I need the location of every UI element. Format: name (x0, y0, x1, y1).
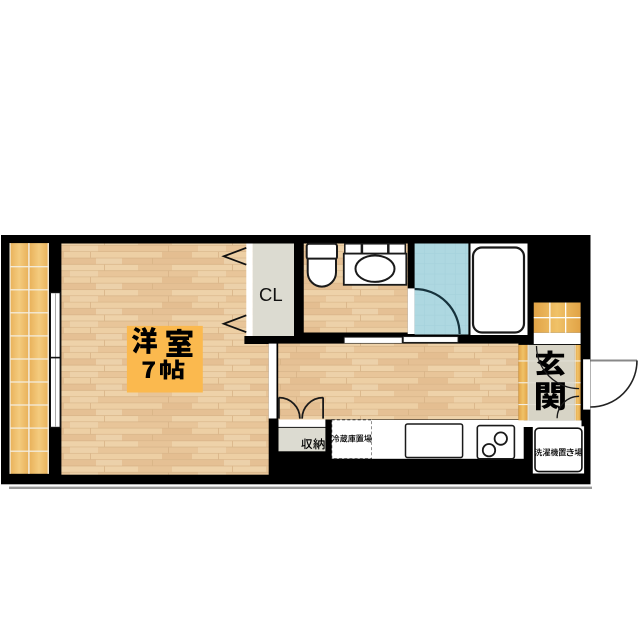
svg-text:CL: CL (259, 284, 283, 305)
